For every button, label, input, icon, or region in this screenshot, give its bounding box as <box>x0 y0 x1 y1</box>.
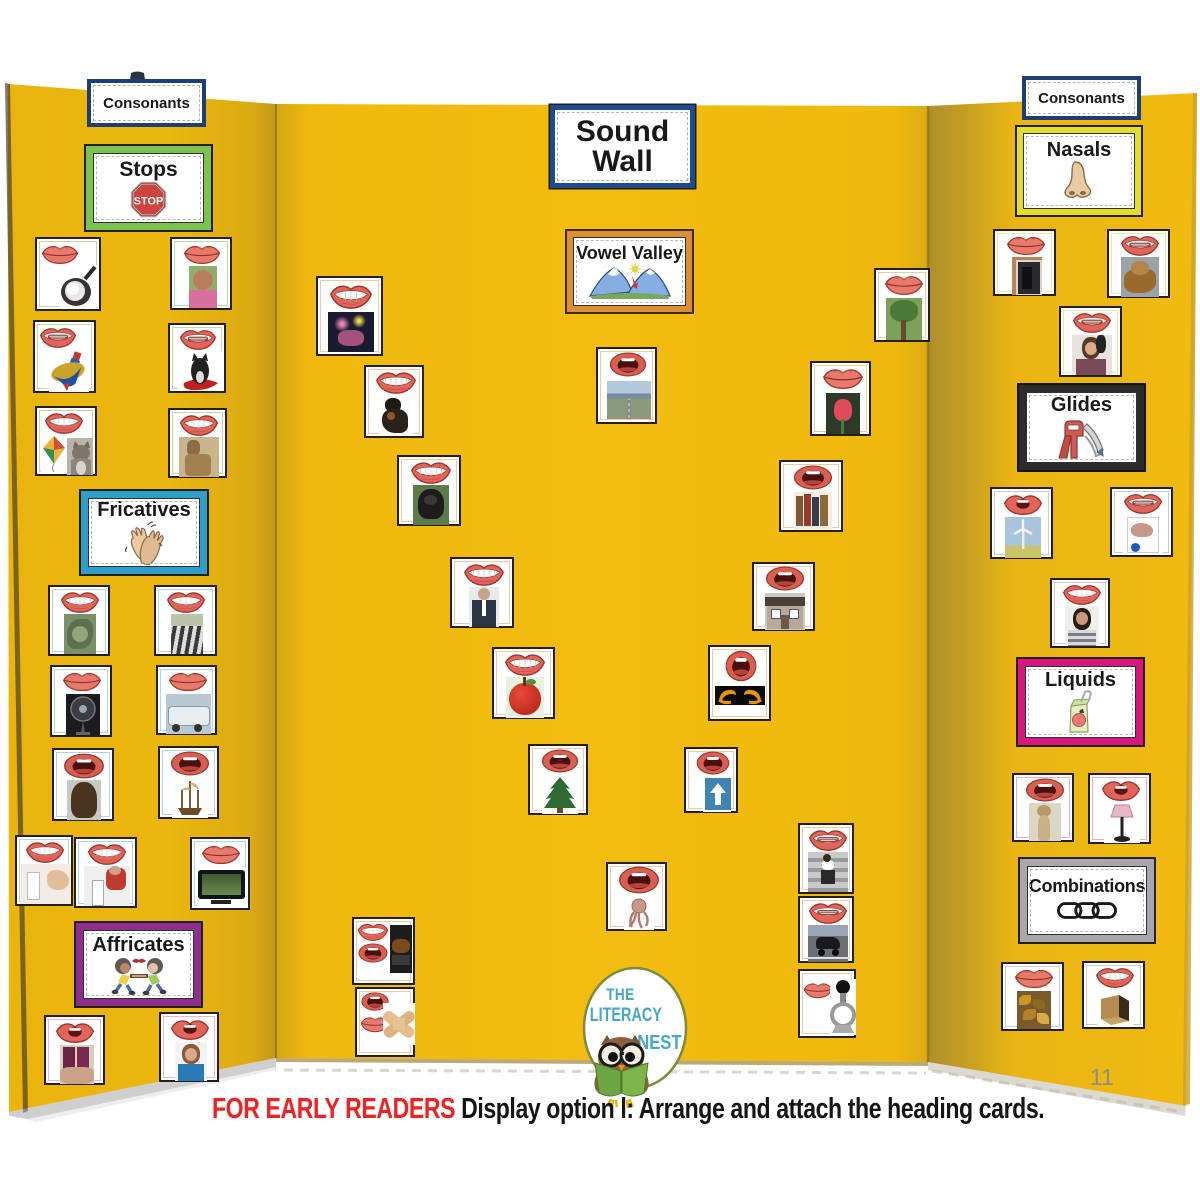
svg-text:LITERACY: LITERACY <box>590 1004 662 1025</box>
svg-text:NEST: NEST <box>637 1031 682 1054</box>
svg-text:THE: THE <box>606 986 634 1005</box>
svg-text:STOP: STOP <box>134 195 163 207</box>
